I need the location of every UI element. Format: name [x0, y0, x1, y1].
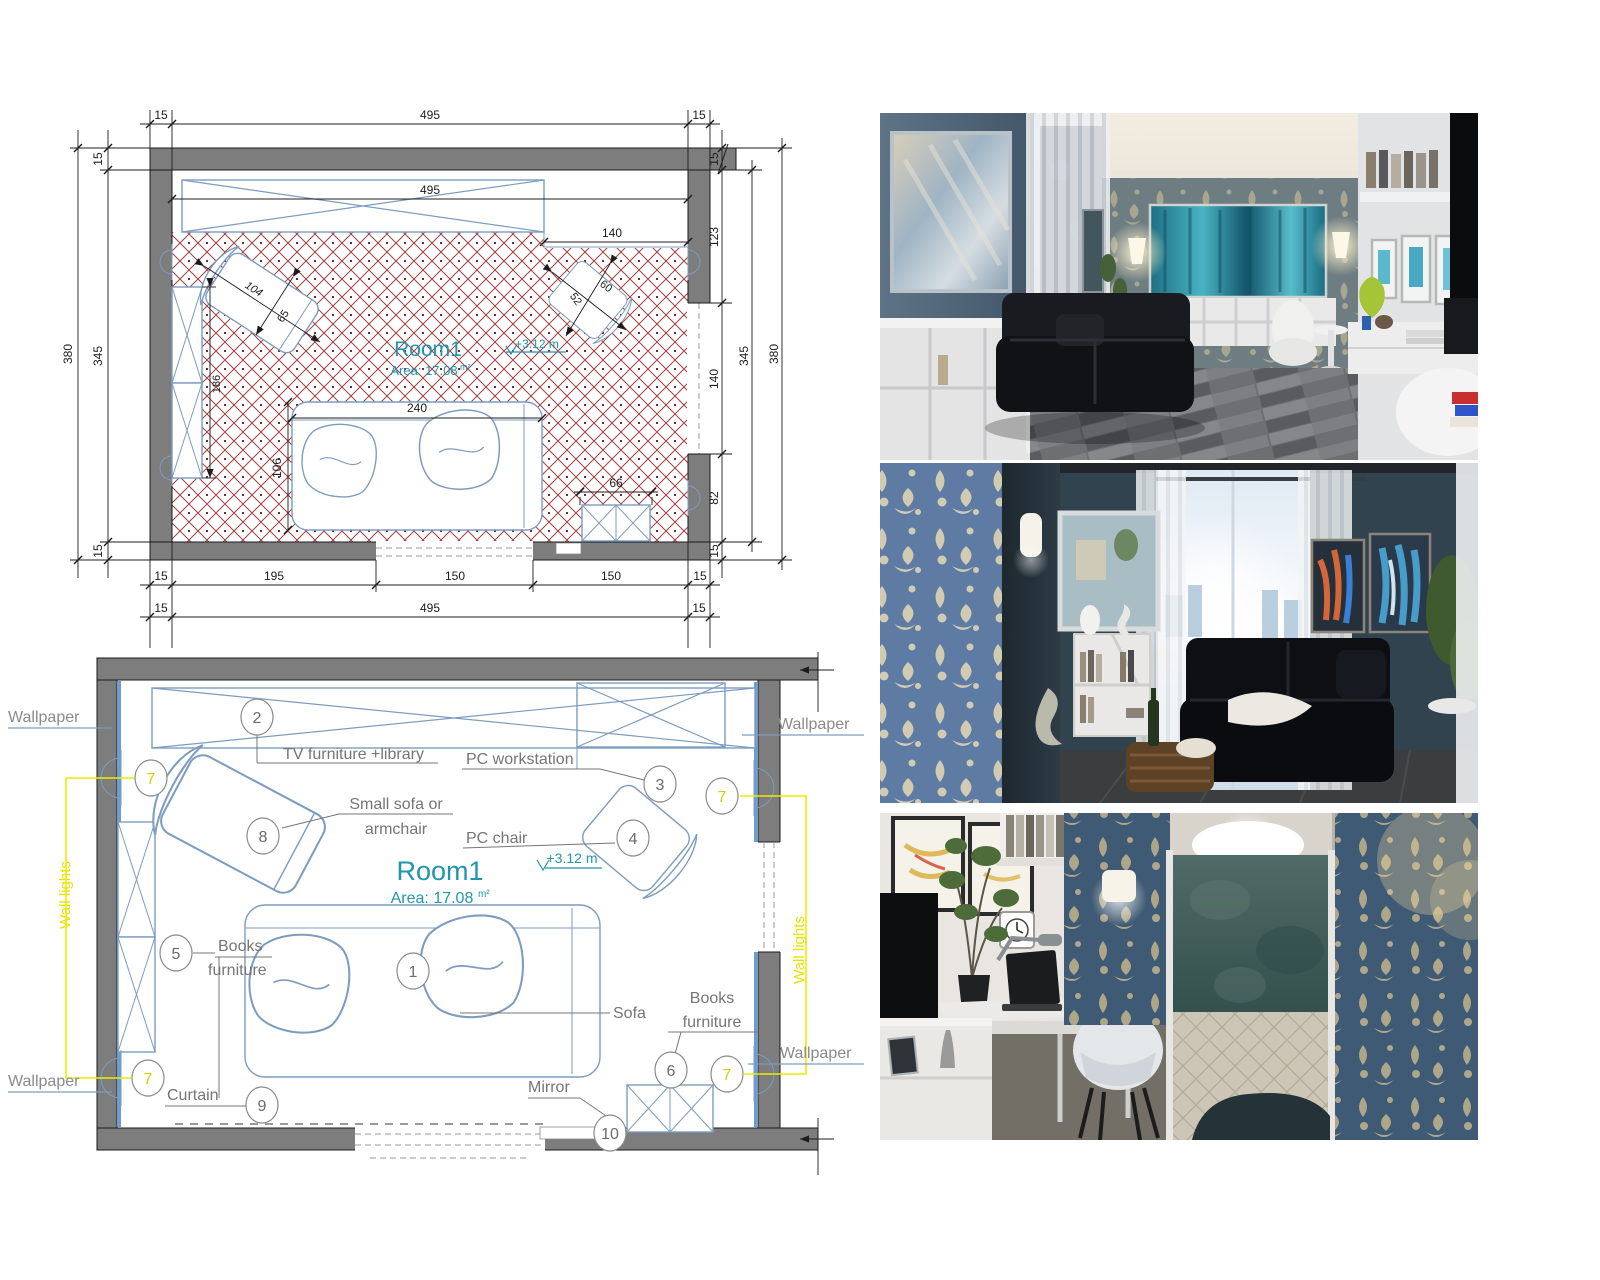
wall-lights-label-left: Wall lights — [57, 861, 74, 929]
sofa — [292, 402, 542, 530]
render-living-room-day — [880, 463, 1478, 803]
mirror-niche — [556, 543, 581, 554]
render2-vase — [1080, 605, 1100, 635]
wall-lights-label-right: Wall lights — [791, 916, 808, 984]
books-right-label-2: furniture — [683, 1014, 742, 1031]
render3-alcove — [1166, 813, 1335, 1140]
render1-painting — [1150, 205, 1326, 297]
svg-text:345: 345 — [737, 346, 751, 366]
room-title-block: Room1 Area: 17.08 m² +3.12 m — [391, 850, 602, 907]
svg-text:9: 9 — [258, 1098, 267, 1115]
mirror-label: Mirror — [528, 1079, 570, 1096]
sofa — [245, 905, 600, 1077]
svg-text:15: 15 — [154, 601, 168, 615]
svg-text:4: 4 — [629, 831, 638, 848]
level-mark: +3.12 m — [515, 337, 559, 351]
svg-text:5: 5 — [172, 946, 181, 963]
render1-side-picture — [1083, 210, 1103, 292]
render2-mirror — [1060, 513, 1158, 629]
svg-text:140: 140 — [602, 226, 622, 240]
books-furniture-left — [172, 287, 202, 478]
wallpaper-label-mr: Wallpaper — [780, 1045, 852, 1062]
wallpaper-label-tr: Wallpaper — [778, 716, 850, 733]
dimensioned-floor-plan: Room1 Area: 17.08 m² +3.12 m 15 495 15 4… — [50, 95, 820, 655]
room-area-unit: m² — [460, 362, 471, 372]
svg-text:15: 15 — [154, 569, 168, 583]
curtain-label: Curtain — [167, 1087, 219, 1104]
sofa-label: Sofa — [613, 1005, 646, 1022]
svg-text:380: 380 — [61, 344, 75, 364]
wallpaper-label-bl: Wallpaper — [8, 1073, 80, 1090]
svg-text:1: 1 — [409, 964, 418, 981]
svg-text:3: 3 — [656, 777, 665, 794]
render3-drawer-unit — [880, 1018, 992, 1140]
small-sofa-label-2: armchair — [365, 821, 428, 838]
svg-text:380: 380 — [767, 344, 781, 364]
books-left-label-2: furniture — [208, 962, 267, 979]
furniture-layout-plan: Wall lights Wall lights 7 7 7 7 2 TV fur… — [0, 652, 870, 1280]
svg-text:7: 7 — [718, 789, 727, 806]
render-living-room-evening — [880, 113, 1478, 460]
small-sofa-label-1: Small sofa or — [349, 796, 443, 813]
svg-text:15: 15 — [91, 152, 105, 166]
svg-text:15: 15 — [692, 601, 706, 615]
svg-text:10: 10 — [601, 1126, 619, 1143]
svg-text:15: 15 — [707, 152, 721, 166]
svg-text:345: 345 — [91, 346, 105, 366]
svg-text:15: 15 — [91, 544, 105, 558]
svg-text:240: 240 — [407, 401, 427, 415]
wallpaper-label-tl: Wallpaper — [8, 709, 80, 726]
svg-text:106: 106 — [270, 458, 284, 478]
books-furniture-right — [582, 505, 650, 541]
svg-text:15: 15 — [154, 108, 168, 122]
books-left-label-1: Books — [218, 938, 262, 955]
svg-text:7: 7 — [723, 1067, 732, 1084]
svg-text:195: 195 — [264, 569, 284, 583]
svg-text:150: 150 — [445, 569, 465, 583]
svg-text:2: 2 — [253, 710, 262, 727]
svg-text:123: 123 — [707, 227, 721, 247]
level-mark: +3.12 m — [547, 850, 598, 866]
svg-text:82: 82 — [707, 491, 721, 505]
books-furniture-left — [118, 822, 155, 1052]
tv-label: TV furniture +library — [283, 746, 424, 763]
svg-text:140: 140 — [707, 369, 721, 389]
svg-text:495: 495 — [420, 108, 440, 122]
svg-text:7: 7 — [147, 771, 156, 788]
room-area: Area: 17.08 — [391, 890, 474, 907]
room-area: Area: 17.08 — [390, 363, 457, 378]
render1-mirror — [892, 133, 1010, 291]
svg-text:15: 15 — [693, 569, 707, 583]
svg-text:150: 150 — [601, 569, 621, 583]
svg-text:186: 186 — [211, 375, 223, 393]
render2-paintings — [1312, 534, 1430, 632]
svg-text:7: 7 — [144, 1071, 153, 1088]
design-sheet: Room1 Area: 17.08 m² +3.12 m 15 495 15 4… — [0, 0, 1600, 1280]
svg-text:495: 495 — [420, 601, 440, 615]
render3-sconce — [1091, 870, 1147, 926]
room-area-unit: m² — [478, 889, 490, 900]
svg-text:15: 15 — [707, 544, 721, 558]
books-right-label-1: Books — [690, 990, 734, 1007]
pc-workstation-label: PC workstation — [466, 751, 574, 768]
render1-sofa — [985, 293, 1205, 444]
pc-chair-label: PC chair — [466, 830, 528, 847]
books-furniture-right — [627, 1085, 713, 1132]
svg-text:66: 66 — [609, 476, 623, 490]
render-home-office — [880, 813, 1478, 1140]
svg-text:8: 8 — [259, 829, 268, 846]
render2-damask-wall — [880, 463, 1002, 803]
svg-text:6: 6 — [667, 1063, 676, 1080]
pc-workstation — [577, 683, 725, 769]
render3-right-wallpaper — [1335, 813, 1478, 1140]
room-name: Room1 — [396, 856, 483, 886]
svg-text:495: 495 — [420, 183, 440, 197]
svg-text:15: 15 — [692, 108, 706, 122]
room-name: Room1 — [394, 338, 462, 361]
